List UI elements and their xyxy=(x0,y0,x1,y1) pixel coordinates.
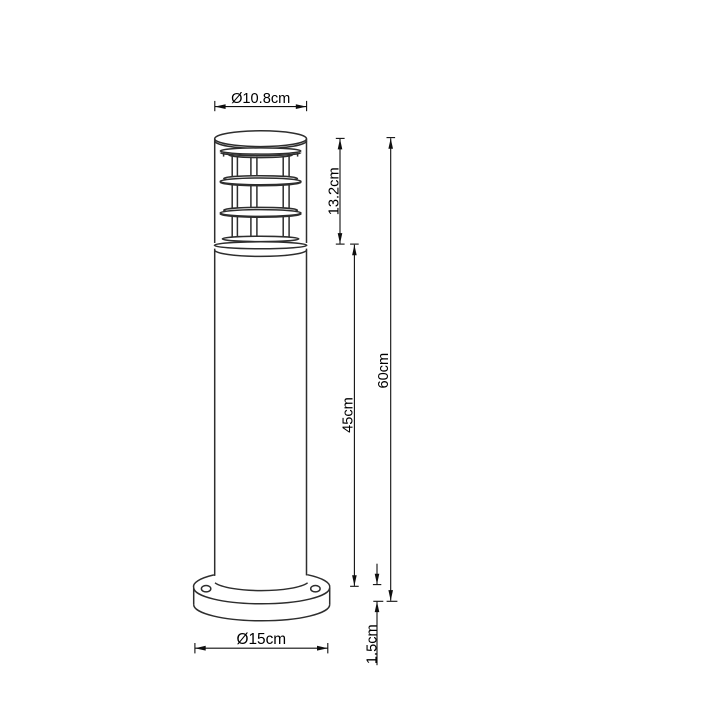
svg-text:Ø10.8cm: Ø10.8cm xyxy=(231,91,290,107)
svg-text:13.2cm: 13.2cm xyxy=(327,167,343,215)
svg-text:60cm: 60cm xyxy=(376,353,392,389)
svg-text:45cm: 45cm xyxy=(340,397,356,433)
svg-text:1.5cm: 1.5cm xyxy=(364,624,380,664)
svg-text:Ø15cm: Ø15cm xyxy=(236,631,286,648)
